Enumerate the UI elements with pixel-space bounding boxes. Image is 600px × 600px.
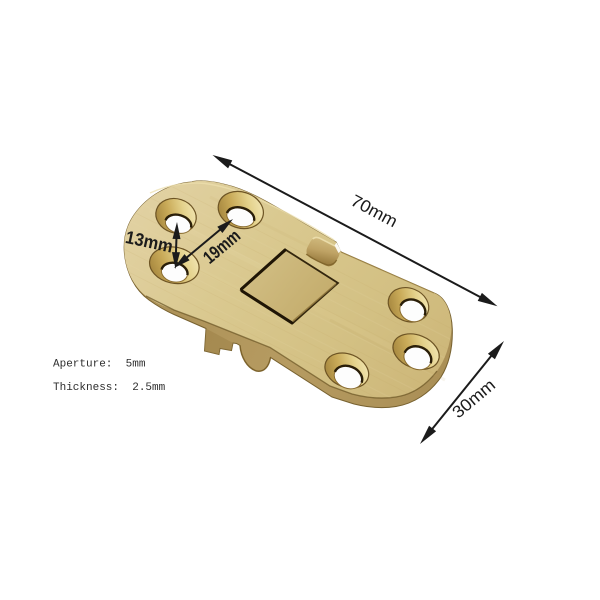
svg-text:Aperture: 5mm: Aperture: 5mm bbox=[53, 359, 146, 371]
svg-text:70mm: 70mm bbox=[348, 191, 401, 231]
svg-text:Thickness: 2.5mm: Thickness: 2.5mm bbox=[53, 382, 166, 394]
